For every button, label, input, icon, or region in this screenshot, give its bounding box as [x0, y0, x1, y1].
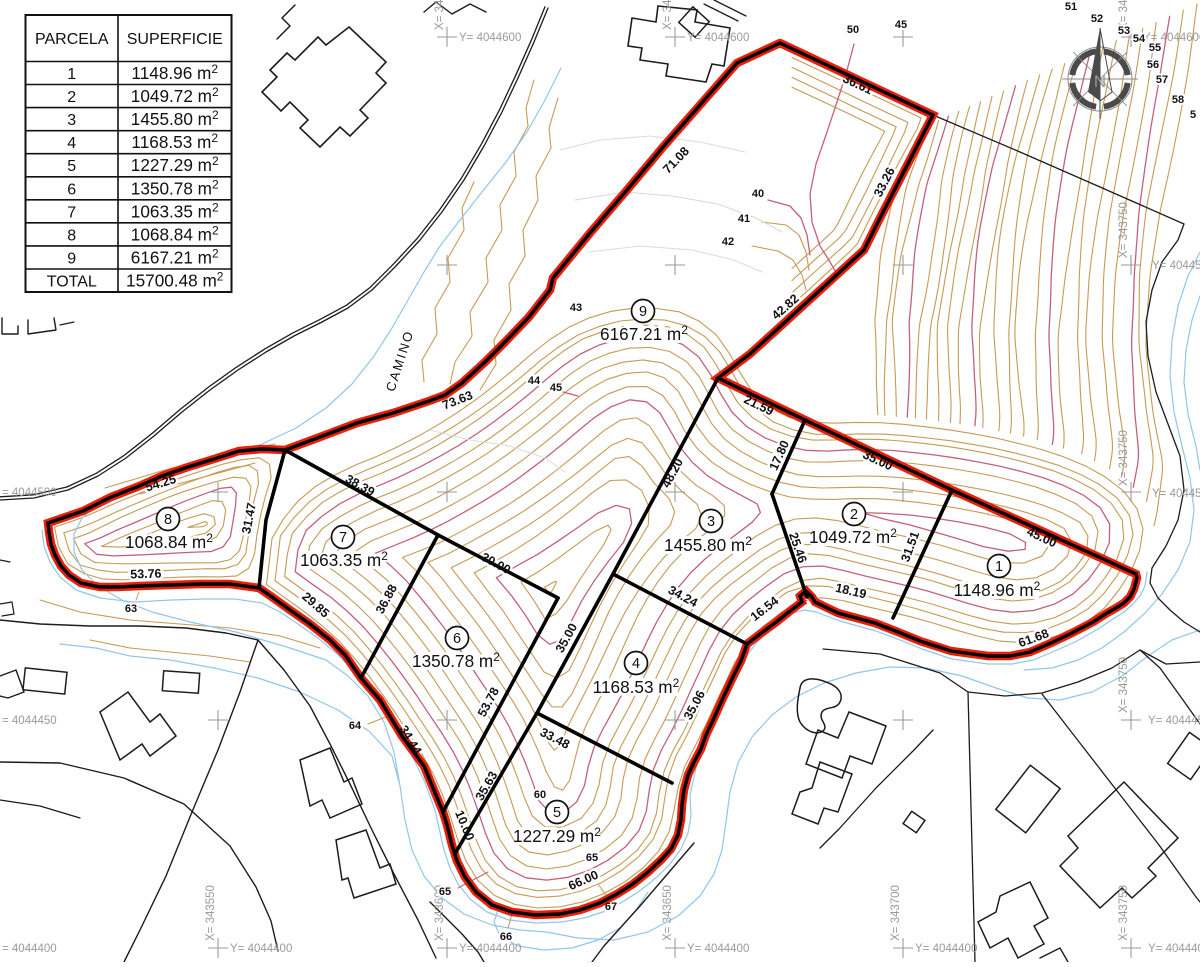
svg-text:N: N: [1094, 72, 1106, 91]
svg-text:65: 65: [586, 852, 598, 864]
svg-text:5: 5: [67, 158, 76, 175]
svg-text:1049.72 m2: 1049.72 m2: [809, 526, 897, 547]
svg-text:44: 44: [528, 375, 541, 387]
svg-text:53: 53: [1118, 25, 1130, 37]
svg-text:56: 56: [1147, 59, 1159, 71]
svg-text:X= 343650: X= 343650: [662, 885, 674, 941]
svg-text:1350.78 m2: 1350.78 m2: [131, 177, 219, 198]
svg-text:Y= 4044400: Y= 4044400: [915, 943, 977, 955]
svg-text:1455.80 m2: 1455.80 m2: [664, 534, 752, 555]
svg-text:SUPERFICIE: SUPERFICIE: [127, 31, 223, 48]
svg-text:Y= 4044400: Y= 4044400: [1148, 943, 1200, 955]
svg-text:Y= 4044400: Y= 4044400: [459, 943, 521, 955]
svg-text:2: 2: [67, 89, 76, 106]
svg-text:3: 3: [67, 112, 76, 129]
svg-text:63: 63: [125, 603, 137, 615]
svg-text:51: 51: [1065, 1, 1077, 13]
svg-text:6167.21 m2: 6167.21 m2: [131, 246, 219, 267]
svg-text:1068.84 m2: 1068.84 m2: [131, 223, 219, 244]
svg-text:X= 343600: X= 343600: [434, 0, 446, 30]
svg-text:66: 66: [500, 931, 512, 943]
svg-text:8: 8: [67, 227, 76, 244]
svg-text:6: 6: [453, 631, 461, 647]
svg-text:X= 343750: X= 343750: [1118, 885, 1130, 941]
svg-text:1148.96 m2: 1148.96 m2: [131, 62, 218, 83]
svg-text:1: 1: [67, 66, 76, 83]
svg-text:6167.21 m2: 6167.21 m2: [600, 323, 688, 344]
svg-text:9: 9: [639, 304, 647, 320]
svg-text:Y= 4044400: Y= 4044400: [230, 943, 292, 955]
svg-text:50: 50: [847, 24, 859, 36]
svg-text:54: 54: [1133, 33, 1146, 45]
svg-text:PARCELA: PARCELA: [35, 31, 109, 48]
svg-text:X= 343700: X= 343700: [890, 885, 902, 941]
svg-text:1049.72 m2: 1049.72 m2: [131, 85, 219, 106]
svg-text:Y= 4044550: Y= 4044550: [1152, 260, 1200, 272]
svg-text:45: 45: [550, 382, 562, 394]
svg-text:7: 7: [67, 204, 76, 221]
svg-text:6: 6: [67, 181, 76, 198]
svg-text:1068.84 m2: 1068.84 m2: [125, 531, 213, 552]
svg-text:67: 67: [605, 901, 617, 913]
svg-text:52: 52: [1091, 13, 1103, 25]
svg-text:= 4044400: = 4044400: [2, 943, 57, 955]
svg-text:X= 343650: X= 343650: [662, 0, 674, 30]
svg-text:4: 4: [632, 656, 640, 672]
svg-text:8: 8: [164, 512, 172, 528]
svg-text:45: 45: [895, 19, 907, 31]
svg-text:X= 343750: X= 343750: [1118, 202, 1130, 258]
svg-text:1063.35 m2: 1063.35 m2: [300, 549, 388, 570]
svg-text:1168.53 m2: 1168.53 m2: [131, 131, 218, 152]
svg-text:1063.35 m2: 1063.35 m2: [131, 200, 219, 221]
svg-text:64: 64: [349, 720, 362, 732]
svg-text:Y= 4044450: Y= 4044450: [1148, 715, 1200, 727]
svg-text:65: 65: [439, 886, 451, 898]
svg-text:1227.29 m2: 1227.29 m2: [513, 825, 601, 846]
svg-text:Y= 4044400: Y= 4044400: [687, 943, 749, 955]
svg-text:= 4044450: = 4044450: [2, 715, 57, 727]
svg-text:= 4044500: = 4044500: [2, 487, 57, 499]
svg-text:15700.48 m2: 15700.48 m2: [126, 270, 224, 291]
svg-text:58: 58: [1172, 94, 1184, 106]
svg-text:57: 57: [1156, 74, 1168, 86]
svg-text:1350.78 m2: 1350.78 m2: [412, 650, 500, 671]
svg-text:53.76: 53.76: [130, 566, 162, 581]
svg-text:1148.96 m2: 1148.96 m2: [954, 579, 1041, 600]
svg-text:Y= 4044600: Y= 4044600: [687, 32, 749, 44]
svg-text:60: 60: [534, 789, 546, 801]
svg-text:X= 343750: X= 343750: [1118, 430, 1130, 486]
svg-text:1455.80 m2: 1455.80 m2: [131, 108, 219, 129]
svg-text:40: 40: [752, 188, 764, 200]
svg-text:Y= 4044600: Y= 4044600: [459, 32, 521, 44]
svg-text:4: 4: [67, 135, 76, 152]
svg-text:1168.53 m2: 1168.53 m2: [593, 676, 680, 697]
svg-text:3: 3: [707, 514, 715, 530]
svg-text:TOTAL: TOTAL: [47, 274, 97, 291]
svg-text:42: 42: [722, 236, 734, 248]
svg-text:5: 5: [553, 805, 561, 821]
svg-text:9: 9: [67, 250, 76, 267]
svg-text:X= 343750: X= 343750: [1118, 657, 1130, 713]
svg-text:X= 343550: X= 343550: [205, 885, 217, 941]
svg-text:2: 2: [850, 507, 858, 523]
svg-text:55: 55: [1149, 42, 1161, 54]
svg-text:1: 1: [995, 559, 1003, 575]
svg-text:Y= 4044500: Y= 4044500: [1152, 488, 1200, 500]
svg-text:43: 43: [570, 302, 582, 314]
svg-text:7: 7: [339, 530, 347, 546]
svg-text:1227.29 m2: 1227.29 m2: [131, 154, 219, 175]
svg-text:41: 41: [738, 213, 750, 225]
svg-text:5: 5: [1190, 109, 1196, 121]
